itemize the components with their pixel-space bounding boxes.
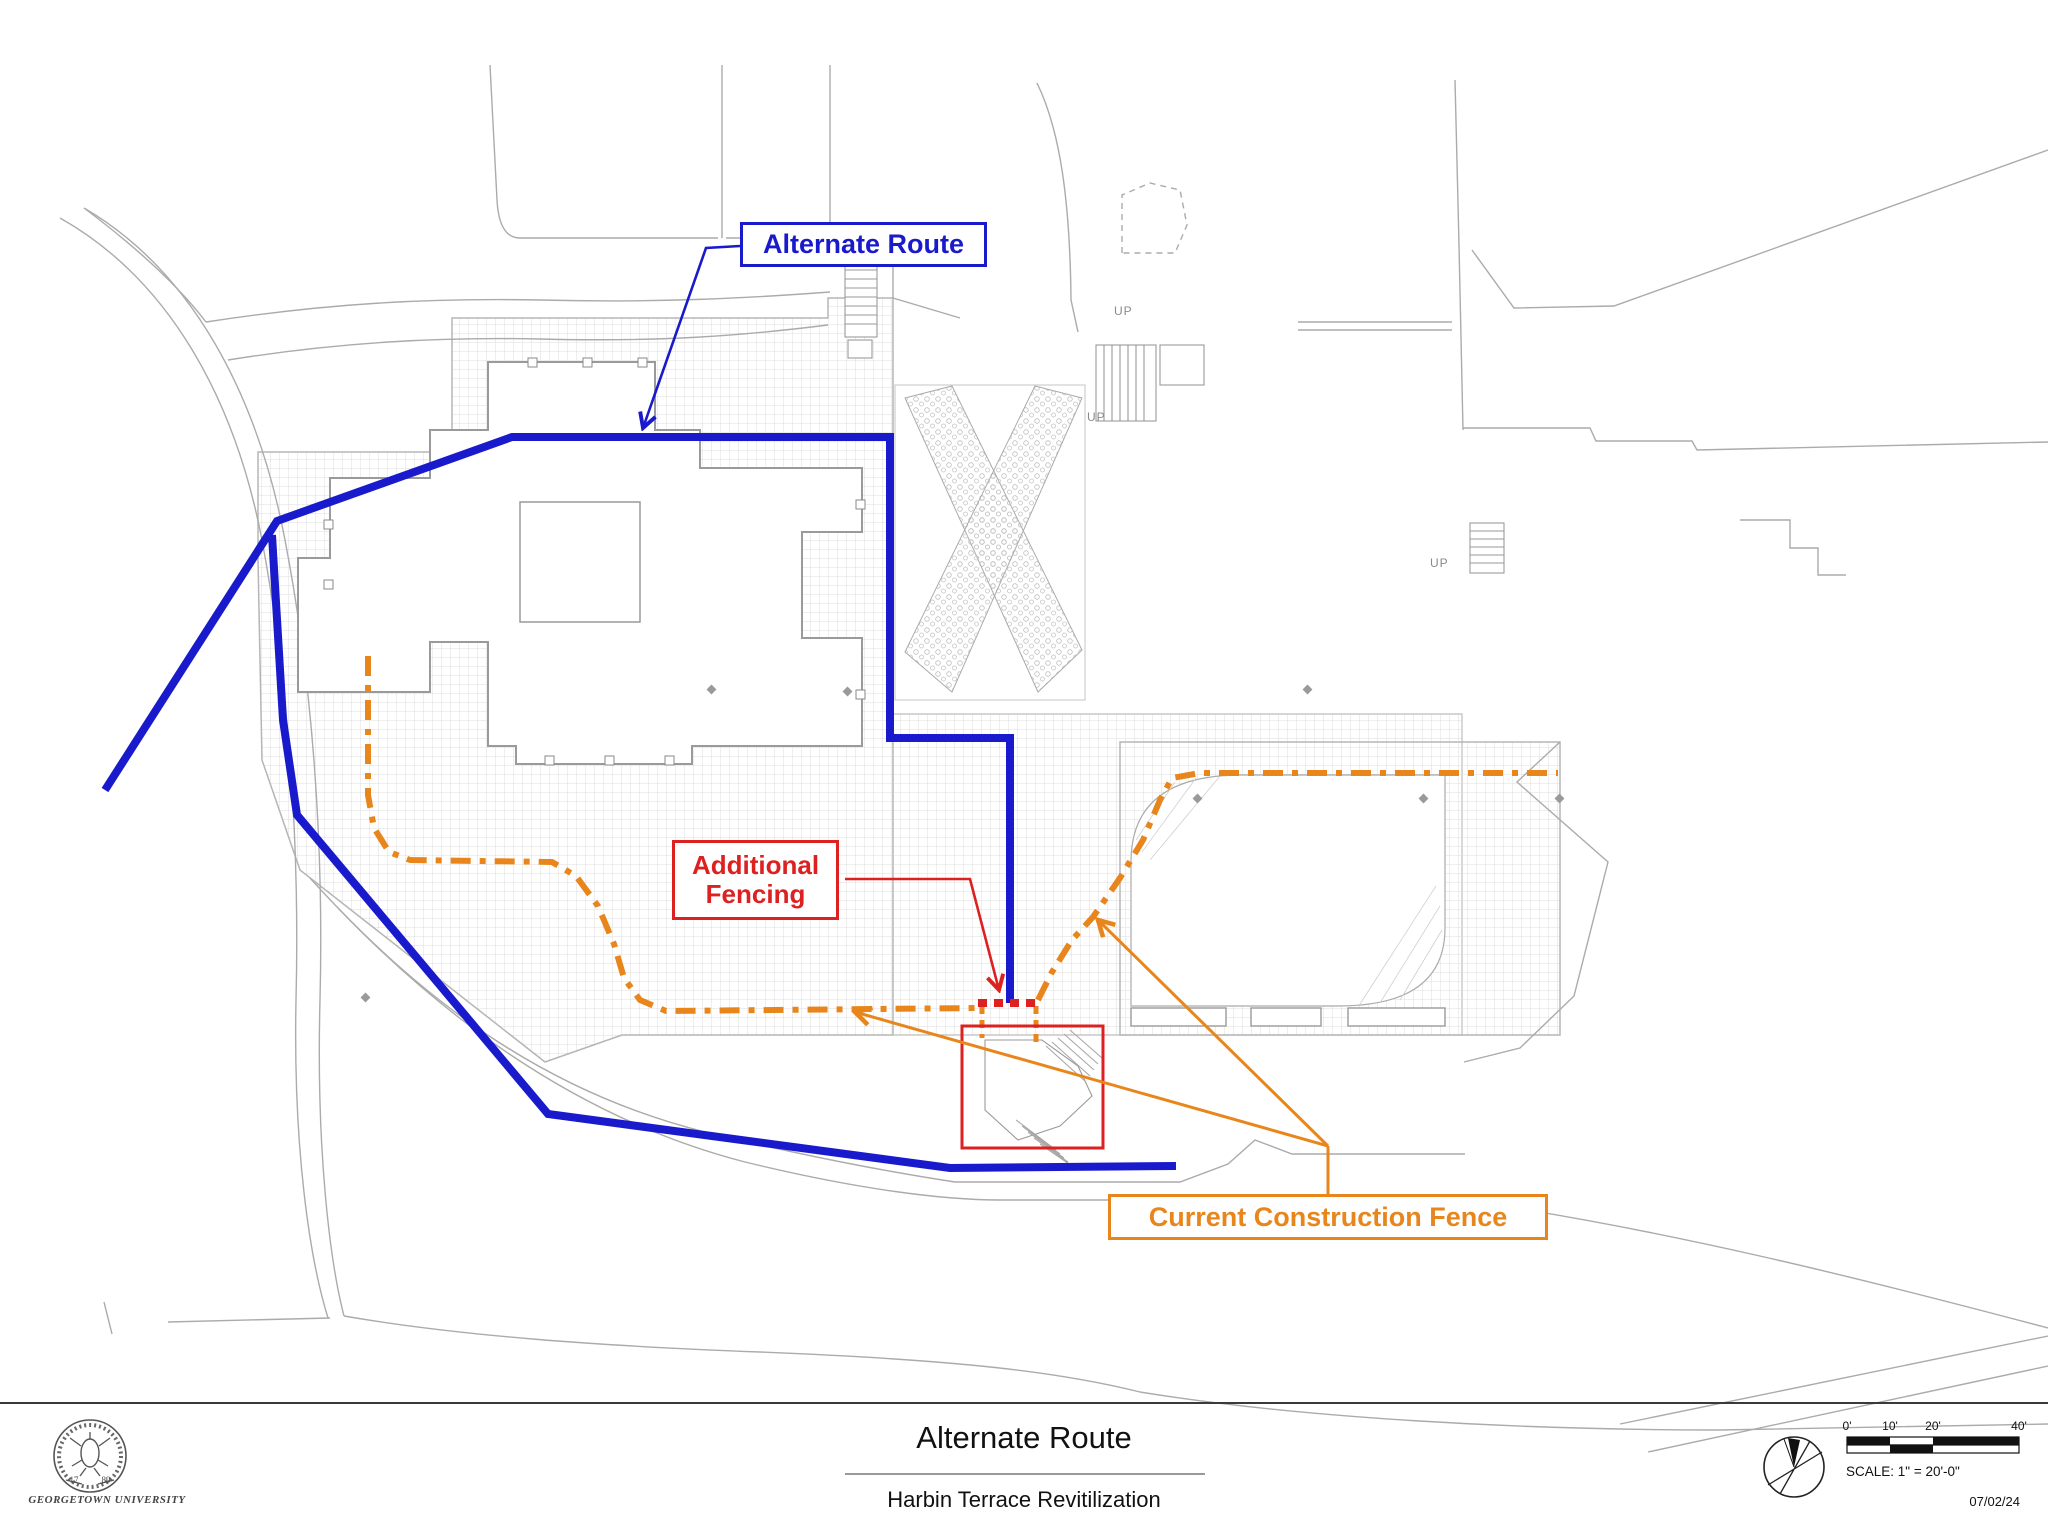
svg-text:0': 0' xyxy=(1843,1419,1852,1433)
additional-fencing-callout: Additional Fencing xyxy=(672,840,839,920)
svg-text:10': 10' xyxy=(1882,1419,1898,1433)
site-plan-drawing xyxy=(0,0,2048,1536)
drawing-sheet: UP UP UP Alternate Route Additional Fenc… xyxy=(0,0,2048,1536)
north-arrow-icon xyxy=(1764,1437,1824,1497)
drawing-title: Alternate Route xyxy=(744,1420,1304,1456)
university-name: GEORGETOWN UNIVERSITY xyxy=(12,1494,202,1506)
date-stamp: 07/02/24 xyxy=(1900,1494,2020,1509)
svg-text:89: 89 xyxy=(102,1475,112,1485)
svg-text:17: 17 xyxy=(70,1475,80,1485)
cross-path xyxy=(895,385,1085,700)
title-underline xyxy=(845,1473,1205,1475)
alternate-route-callout: Alternate Route xyxy=(740,222,987,267)
svg-text:40': 40' xyxy=(2011,1419,2027,1433)
scale-text: SCALE: 1" = 20'-0" xyxy=(1846,1464,1960,1479)
up-label-3: UP xyxy=(1430,556,1449,570)
titleblock-divider xyxy=(0,1402,2048,1404)
scale-bar: 0' 10' 20' 40' xyxy=(1843,1419,2027,1453)
current-construction-fence-callout: Current Construction Fence xyxy=(1108,1194,1548,1240)
up-label-1: UP xyxy=(1114,304,1133,318)
right-plaza xyxy=(1120,742,1560,1035)
georgetown-seal: 17 89 xyxy=(0,1412,200,1532)
up-label-2: UP xyxy=(1087,410,1106,424)
svg-text:20': 20' xyxy=(1925,1419,1941,1433)
drawing-subtitle: Harbin Terrace Revitilization xyxy=(744,1487,1304,1513)
